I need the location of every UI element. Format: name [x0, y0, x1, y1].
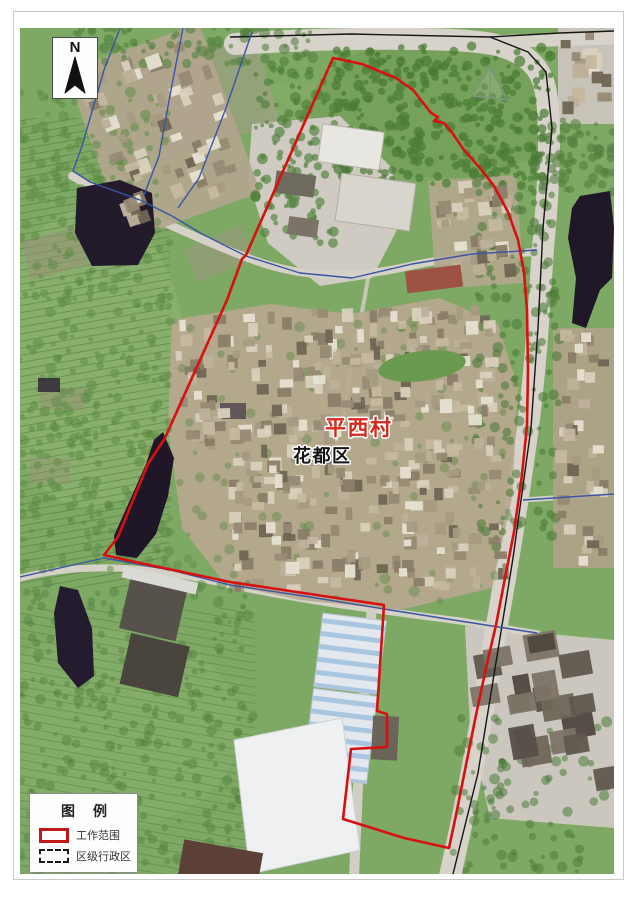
- legend-label: 区级行政区: [76, 848, 131, 864]
- page: 平西村花都区 N 图 例 工作范围 区级行政区: [0, 0, 640, 904]
- map-label-village-name: 平西村: [325, 416, 393, 440]
- satellite-map: 平西村花都区: [20, 28, 614, 874]
- legend-label: 工作范围: [76, 827, 120, 843]
- north-arrow: N: [52, 37, 98, 99]
- map-label-district-name: 花都区: [293, 445, 352, 466]
- north-arrow-icon: [60, 55, 90, 97]
- legend-row-district: 区级行政区: [39, 848, 131, 864]
- legend-row-work-scope: 工作范围: [39, 827, 131, 843]
- work-scope-swatch: [39, 828, 69, 843]
- district-swatch: [39, 849, 69, 863]
- legend-title: 图 例: [39, 801, 131, 821]
- map-canvas: 平西村花都区: [20, 28, 614, 874]
- legend: 图 例 工作范围 区级行政区: [29, 793, 138, 873]
